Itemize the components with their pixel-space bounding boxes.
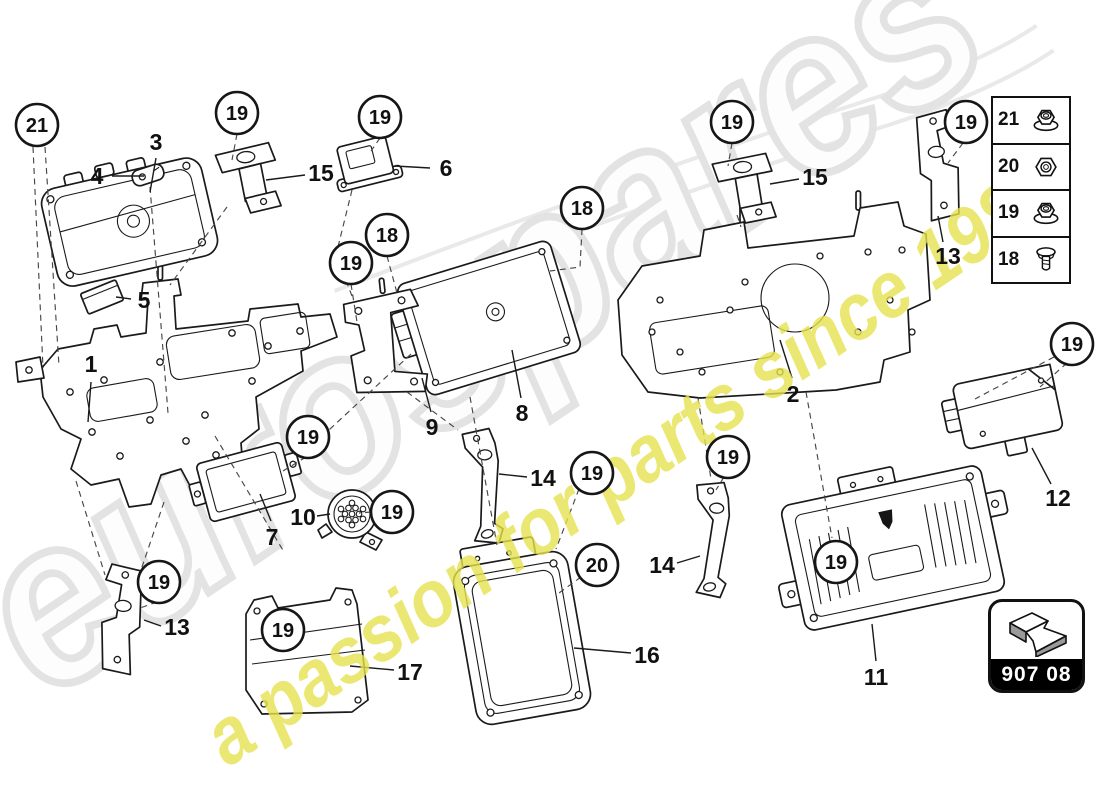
- callout-number: 19: [297, 427, 319, 449]
- part-number-label-15: 15: [802, 164, 828, 190]
- part-number-label-9: 9: [426, 414, 439, 440]
- part-number-label-17: 17: [397, 659, 423, 685]
- flange-nut-icon: [1028, 195, 1064, 231]
- part-6-drawing: [329, 134, 404, 193]
- part-number-label-16: 16: [634, 642, 660, 668]
- legend-number: 21: [998, 109, 1019, 131]
- callout-number: 19: [381, 502, 403, 524]
- callout-number: 19: [148, 572, 170, 594]
- legend-number: 19: [998, 202, 1019, 224]
- hex-nut-icon: [1028, 149, 1064, 185]
- callout-19: 19: [815, 541, 857, 583]
- part-number-label-11: 11: [864, 664, 889, 690]
- callout-19: 19: [711, 101, 753, 143]
- legend-number: 18: [998, 249, 1019, 271]
- legend-item-18: 18: [993, 238, 1069, 283]
- callout-number: 19: [721, 112, 743, 134]
- callout-19: 19: [1051, 323, 1093, 365]
- diagram-canvas: eurospares: [0, 0, 1100, 800]
- fastener-legend: 21201918: [991, 96, 1071, 284]
- legend-item-21: 21: [993, 98, 1069, 145]
- callout-number: 19: [717, 447, 739, 469]
- callout-number: 19: [955, 112, 977, 134]
- callout-number: 19: [581, 463, 603, 485]
- part-number-label-15: 15: [308, 160, 334, 186]
- callout-18: 18: [366, 214, 408, 256]
- callout-19: 19: [359, 96, 401, 138]
- part-number-label-1: 1: [85, 351, 98, 377]
- callout-number: 19: [340, 253, 362, 275]
- part-number-label-13: 13: [935, 243, 961, 269]
- screw-icon: [1028, 242, 1064, 278]
- callout-number: 21: [26, 115, 48, 137]
- part-number-label-4: 4: [91, 163, 104, 189]
- callout-number: 19: [369, 107, 391, 129]
- callout-20: 20: [576, 544, 618, 586]
- page-code-label: 907 08: [991, 659, 1082, 690]
- callout-number: 19: [1061, 334, 1083, 356]
- callout-18: 18: [561, 187, 603, 229]
- callout-number: 19: [272, 620, 294, 642]
- callout-19: 19: [287, 416, 329, 458]
- callout-21: 21: [16, 104, 58, 146]
- callout-19: 19: [138, 561, 180, 603]
- part-number-label-12: 12: [1045, 485, 1071, 511]
- legend-item-19: 19: [993, 191, 1069, 238]
- callout-number: 19: [226, 103, 248, 125]
- legend-item-20: 20: [993, 145, 1069, 192]
- callout-number: 20: [586, 555, 608, 577]
- part-number-label-14: 14: [530, 465, 556, 491]
- parts-diagram-page: eurospares: [0, 0, 1100, 800]
- flange-nut-icon: [1028, 102, 1064, 138]
- callout-number: 18: [571, 198, 593, 220]
- part-number-label-5: 5: [138, 287, 151, 313]
- callout-19: 19: [330, 242, 372, 284]
- page-code-box: 907 08: [988, 599, 1085, 693]
- part-number-label-10: 10: [290, 504, 316, 530]
- callout-19: 19: [707, 436, 749, 478]
- part-number-label-7: 7: [266, 524, 279, 550]
- callout-number: 18: [376, 225, 398, 247]
- part-number-label-3: 3: [150, 129, 163, 155]
- part-14-right-drawing: [691, 481, 731, 598]
- direction-arrow-icon: [991, 602, 1082, 659]
- part-number-label-2: 2: [787, 381, 800, 407]
- part-number-label-8: 8: [516, 400, 529, 426]
- part-number-label-6: 6: [440, 155, 453, 181]
- part-number-label-13: 13: [164, 614, 190, 640]
- callout-19: 19: [216, 92, 258, 134]
- callout-number: 19: [825, 552, 847, 574]
- part-3-drawing: [36, 143, 221, 289]
- legend-number: 20: [998, 156, 1019, 178]
- callout-19: 19: [262, 609, 304, 651]
- callout-19: 19: [371, 491, 413, 533]
- callout-19: 19: [571, 452, 613, 494]
- callout-19: 19: [945, 101, 987, 143]
- part-11-drawing: [759, 445, 1024, 636]
- part-number-label-14: 14: [649, 552, 675, 578]
